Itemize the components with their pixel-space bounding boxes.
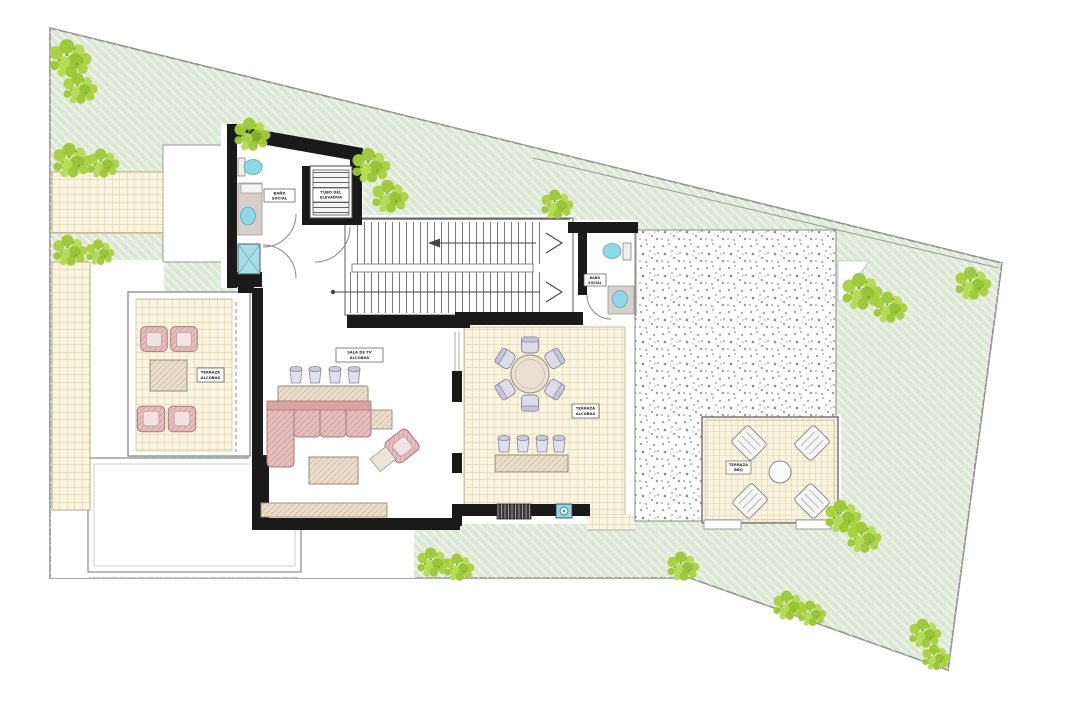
bath-upper-label-line1: BAÑO [274,190,286,195]
terrace-table [150,360,187,391]
high-table [495,455,568,472]
pergola-terrace [702,417,838,529]
vanity-shelf [241,184,262,193]
tile-band-upper-left [52,172,163,233]
bath-right-label-line1: BAÑO [590,275,601,280]
tv-room-label: SALA DE TV ALCOBAS [336,348,383,362]
coffee-table [309,457,358,484]
media-console [261,503,387,517]
washbasin [241,207,256,225]
terrace-armchair [171,327,198,352]
bath-right-label: BAÑO SOCIAL [584,274,606,286]
wall-living-left-upper [252,288,263,458]
wall-dining-left-a [452,371,462,402]
terrace-armchair [141,327,168,352]
high-table-stool [517,435,529,452]
wall-living-bottom [252,518,460,530]
terrace-dining-label-line2: ALCOBAS [576,412,596,416]
stair-stringer [352,264,533,272]
bath-upper-label-line2: SOCIAL [272,196,288,200]
bar-stool [348,366,360,383]
tv-room-label-line2: ALCOBAS [350,356,370,360]
sofa-seat [294,408,320,437]
sofa-back [267,401,371,410]
wall-bath2-top [568,222,638,233]
high-table-stool [553,435,565,452]
terrace-left-label-line1: TERRAZA [201,371,220,375]
terrace-dining-label-line1: TERRAZA [576,407,595,411]
wall-corner-nub [238,283,254,293]
round-dining-table [511,355,549,393]
bath-upper-label: BAÑO SOCIAL [264,189,295,202]
bath-right-label-line2: SOCIAL [588,281,602,285]
elevator-label-line1: TUBO DEL [321,191,343,195]
side-table [371,410,392,429]
dining-chair [522,395,539,411]
elevator-label: TUBO DEL ELEVADOR [313,188,349,202]
door-threshold [704,520,741,529]
staircase [331,218,573,315]
bar-stool [309,366,321,383]
wall-dining-top [455,312,583,325]
pergola-label: TERRAZA BBQ [726,461,751,474]
tv-room-label-line1: SALA DE TV [347,351,372,355]
sink-drain [563,510,565,512]
toilet-bowl [603,244,621,259]
bar-stool [290,366,302,383]
dining-terrace-tiles [464,327,625,515]
bar-counter [278,386,368,402]
grill [497,504,531,519]
wall-dining-left-b [452,453,462,473]
floor-plan-canvas: TUBO DEL ELEVADOR BAÑO SOCIAL SALA DE TV… [0,0,1066,703]
elevator-label-line2: ELEVADOR [320,196,342,200]
pergola-round-table [769,461,791,483]
terrace-left-label: TERRAZA ALCOBAS [197,368,224,382]
footprint-below-living [298,522,414,578]
pergola-label-line1: TERRAZA [729,463,748,467]
toilet-tank [623,243,631,260]
high-table-stool [536,435,548,452]
terrace-armchair [168,406,195,431]
footprint-left-bottom [51,508,89,578]
wall-left-core [227,124,237,288]
walkway-corridor [90,264,130,460]
terrace-dining-label: TERRAZA ALCOBAS [572,404,599,418]
washbasin [613,291,628,308]
bar-stool [329,366,341,383]
dining-chair [522,337,539,353]
sofa-chaise [267,401,294,467]
toilet-bowl [244,160,262,175]
upper-roof-rect [163,145,224,262]
terrace-armchair [137,406,164,431]
dining-tiles-extension [587,515,635,530]
high-table-stool [498,435,510,452]
wall-living-top [347,315,470,328]
sofa-seat [320,408,346,437]
terrace-left-label-line2: ALCOBAS [201,376,221,380]
tile-strip-left [52,262,90,510]
wall-bottom-step [452,504,462,526]
pergola-label-line2: BBQ [734,468,743,472]
sofa-seat [346,408,371,437]
